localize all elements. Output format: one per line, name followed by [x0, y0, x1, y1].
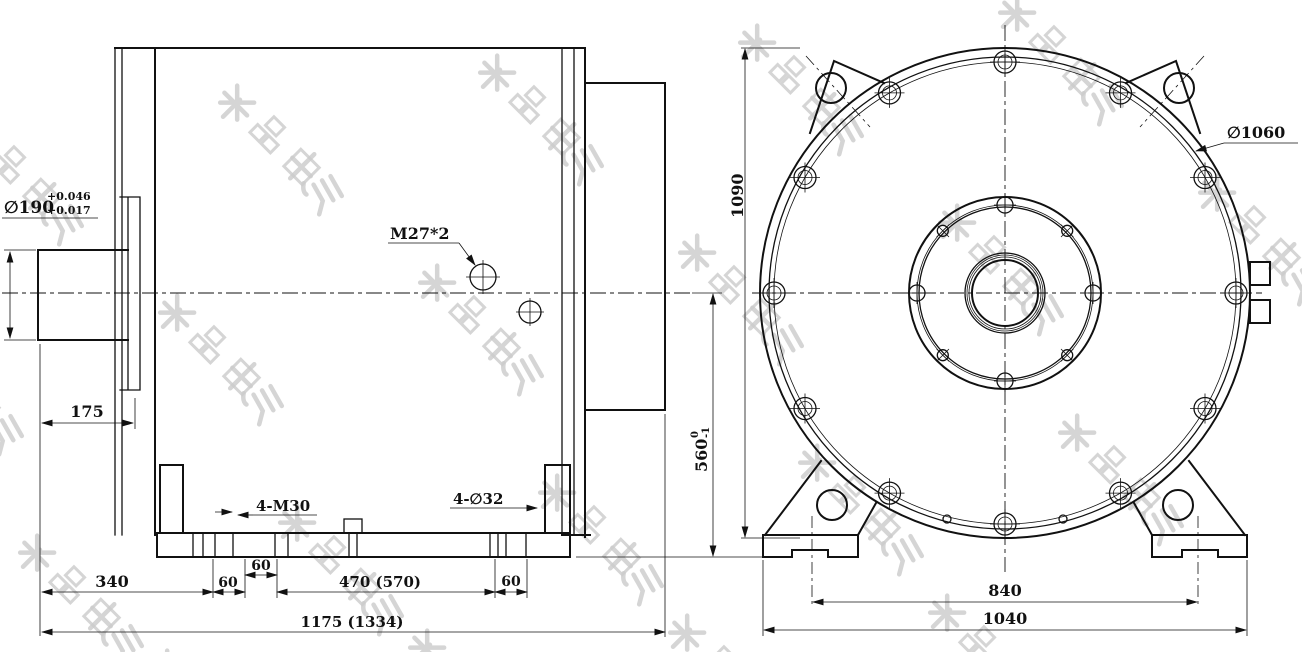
through-holes-label: 4-∅32 — [453, 490, 503, 508]
dim-1040: 1040 — [983, 609, 1028, 628]
dim-840: 840 — [988, 581, 1021, 600]
m30-bolt — [344, 519, 362, 557]
bolt-circle-label: ∅1060 — [1227, 123, 1285, 142]
dim-340: 340 — [95, 572, 128, 591]
thread-hole-secondary — [516, 298, 544, 326]
shaft-diameter-tol-lower: +0.017 — [47, 204, 91, 217]
dim-175: 175 — [70, 402, 103, 421]
shaft-diameter-tol-upper: +0.046 — [47, 190, 91, 203]
thread-hole-m27 — [466, 260, 500, 294]
front-foot — [160, 465, 183, 533]
dim-470-570: 470 (570) — [339, 573, 421, 591]
dim-60-left: 60 — [218, 575, 238, 591]
thread-spec-label: M27*2 — [390, 224, 449, 243]
tapped-holes-label: 4-M30 — [256, 497, 310, 515]
dim-560-tol-upper: 0 — [690, 431, 701, 438]
dim-560-tol-lower: -1 — [701, 427, 712, 438]
dim-60-right: 60 — [501, 574, 521, 590]
terminal-blocks — [1250, 262, 1270, 323]
front-view-dimensions: 1090 560 0 -1 ∅1060 840 1040 — [690, 48, 1298, 636]
watermark-layer — [0, 0, 1302, 652]
end-shield-outline — [115, 48, 155, 535]
end-bell-outline — [585, 83, 665, 410]
dim-overall-length: 1175 (1334) — [301, 613, 404, 631]
side-view — [2, 48, 692, 557]
base-rail — [157, 465, 570, 557]
lifting-lug-right — [1126, 56, 1204, 133]
frame-outline — [115, 48, 665, 537]
drawing-canvas: ∅190 +0.046 +0.017 M27*2 175 4-M30 4-∅32… — [0, 0, 1302, 652]
dim-1090: 1090 — [728, 173, 747, 218]
foot-right — [1134, 461, 1247, 608]
motor-outline-drawing: ∅190 +0.046 +0.017 M27*2 175 4-M30 4-∅32… — [0, 0, 1302, 652]
dim-560: 560 — [692, 439, 711, 472]
dim-60-mid: 60 — [251, 558, 271, 574]
